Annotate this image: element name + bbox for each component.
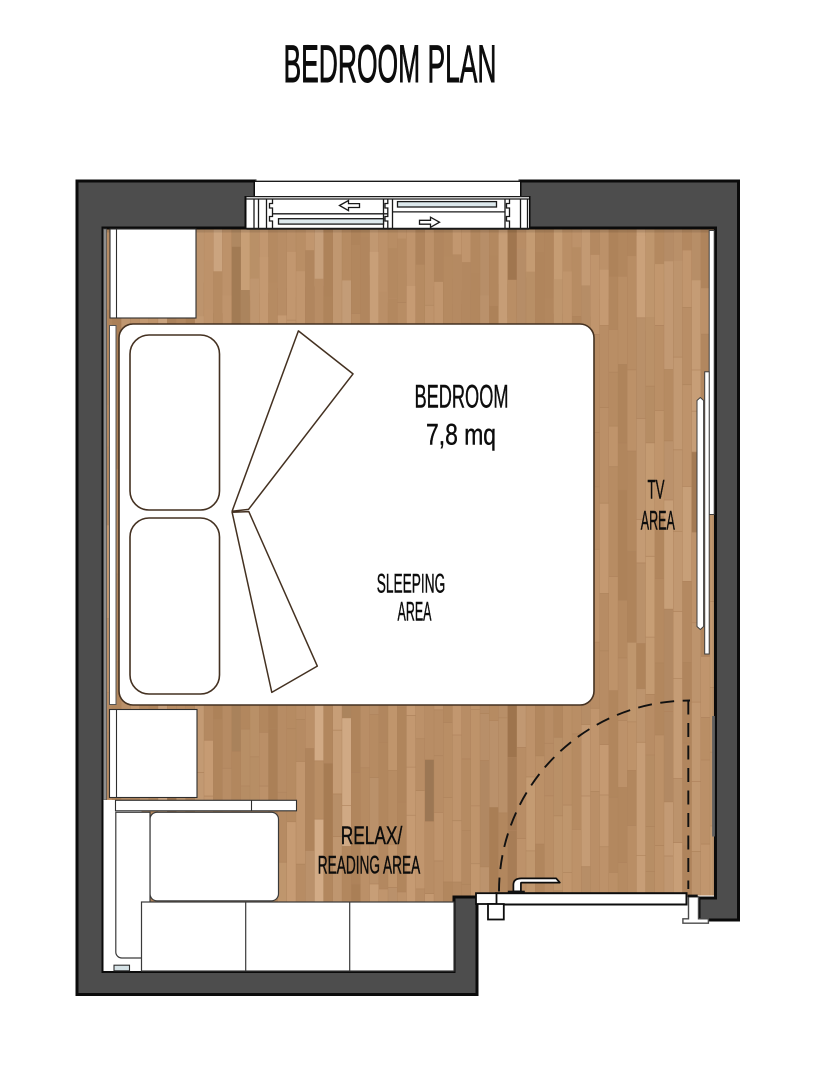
svg-text:7,8 mq: 7,8 mq [426, 419, 496, 452]
svg-text:BEDROOM PLAN: BEDROOM PLAN [284, 35, 497, 94]
svg-text:RELAX/: RELAX/ [341, 822, 403, 850]
svg-text:READING AREA: READING AREA [318, 852, 421, 880]
svg-text:TV: TV [648, 475, 665, 505]
svg-text:AREA: AREA [398, 597, 432, 627]
svg-text:AREA: AREA [641, 506, 675, 536]
svg-text:BEDROOM: BEDROOM [415, 379, 509, 415]
svg-text:SLEEPING: SLEEPING [377, 569, 446, 599]
